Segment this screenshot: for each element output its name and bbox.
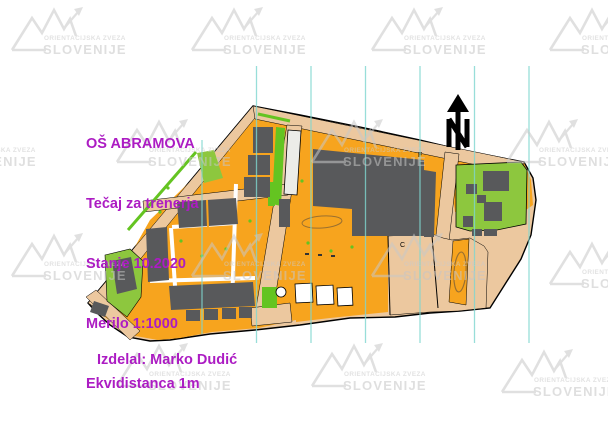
fountain-circle [276,287,286,297]
building [248,155,270,175]
shed [472,229,482,236]
garage [239,307,252,318]
building-in-playground [477,195,486,203]
map-status-date: Stanje 10.2020 [86,254,200,274]
green-strip-south [262,287,277,308]
map-label-c: C [400,242,405,249]
building-gap [207,200,208,227]
shed [484,229,497,236]
map-title: OŠ ABRAMOVA [86,134,200,154]
map-author-credit: Izdelal: Marko Dudić [97,352,237,368]
building-in-playground [463,216,473,227]
school-wing [424,170,436,237]
garage [222,308,236,319]
map-subtitle: Tečaj za trenerja [86,194,200,214]
map-poster-page: F C ORIENTACIJSKA ZVEZA [0,0,608,430]
map-scale: Merilo 1:1000 [86,314,200,334]
building-in-playground [483,171,509,191]
north-arrow-icon [447,94,469,150]
building-in-playground [466,184,477,194]
building [279,199,290,227]
map-contour-interval: Ekvidistanca 1m [86,374,200,394]
map-title-block: OŠ ABRAMOVA Tečaj za trenerja Stanje 10.… [86,94,200,430]
building-in-playground [484,202,502,221]
garage [204,309,218,320]
